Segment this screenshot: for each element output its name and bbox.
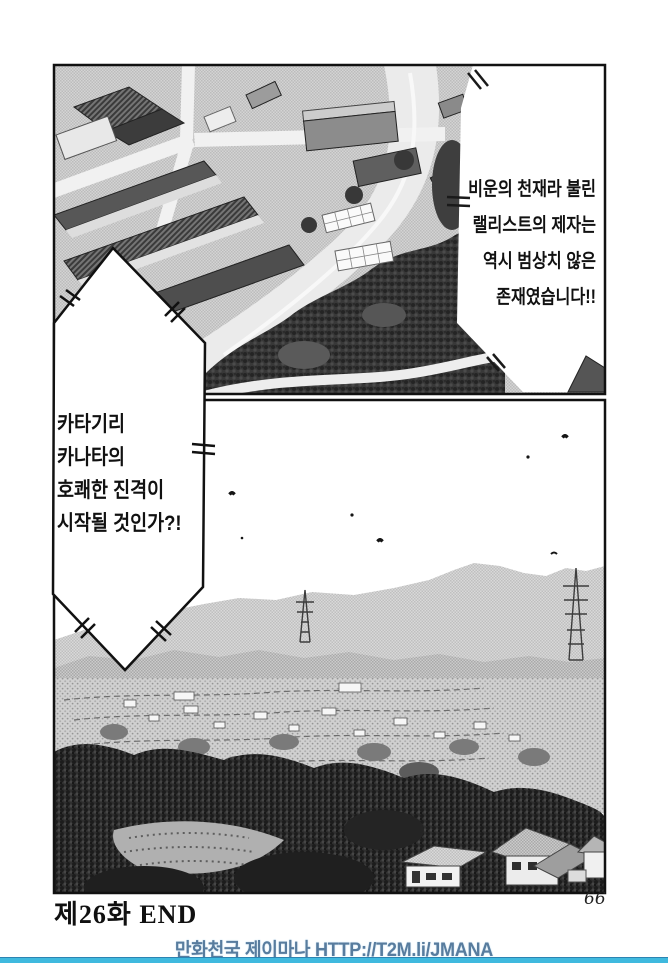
page-number: 66	[584, 889, 606, 909]
caption-line: 시작될 것인가?!	[57, 507, 198, 540]
footer-rule	[0, 957, 668, 963]
caption-diamond-bubble: 카타기리 카나타의 호쾌한 진격이 시작될 것인가?!	[57, 408, 198, 540]
caption-line: 카타기리	[57, 408, 198, 441]
manga-page: 비운의 천재라 불린 랠리스트의 제자는 역시 범상치 않은 존재였습니다!! …	[0, 0, 668, 966]
caption-line: 존재였습니다!!	[460, 280, 596, 316]
caption-line: 호쾌한 진격이	[57, 474, 198, 507]
chapter-end-label: 제26화 END	[54, 894, 197, 931]
caption-line: 비운의 천재라 불린	[460, 172, 596, 208]
caption-line: 랠리스트의 제자는	[460, 208, 596, 244]
caption-line: 카나타의	[57, 441, 198, 474]
caption-line: 역시 범상치 않은	[460, 244, 596, 280]
caption-right-bubble: 비운의 천재라 불린 랠리스트의 제자는 역시 범상치 않은 존재였습니다!!	[460, 172, 596, 316]
